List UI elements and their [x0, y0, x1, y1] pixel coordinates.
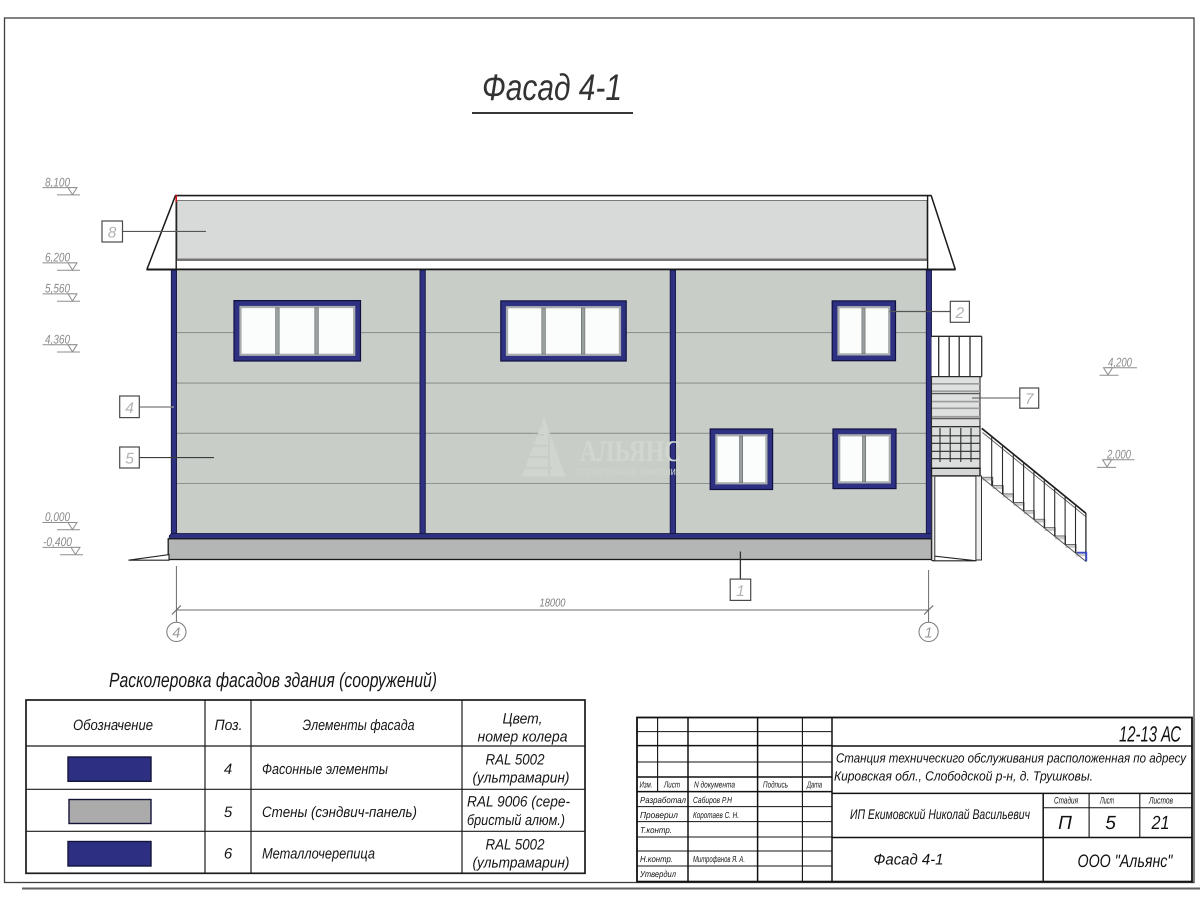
- svg-text:бристый алюм.): бристый алюм.): [467, 812, 565, 829]
- svg-text:8,100: 8,100: [45, 175, 70, 189]
- svg-text:5: 5: [125, 451, 134, 468]
- svg-text:6,200: 6,200: [45, 251, 70, 265]
- svg-text:Т.контр.: Т.контр.: [640, 825, 672, 835]
- svg-text:0,000: 0,000: [45, 510, 70, 524]
- svg-text:Расколеровка фасадов здания (с: Расколеровка фасадов здания (сооружений): [109, 669, 437, 692]
- svg-text:Сабиров Р.Н: Сабиров Р.Н: [693, 795, 732, 805]
- svg-text:N документа: N документа: [694, 780, 735, 790]
- svg-text:Изм.: Изм.: [640, 780, 653, 790]
- svg-text:2: 2: [954, 305, 964, 322]
- svg-text:1: 1: [925, 625, 933, 641]
- svg-text:5: 5: [224, 804, 233, 821]
- svg-text:4: 4: [125, 400, 134, 417]
- svg-text:Листов: Листов: [1148, 796, 1173, 807]
- svg-text:Лист: Лист: [1099, 796, 1114, 807]
- svg-text:Стадия: Стадия: [1054, 796, 1078, 807]
- svg-text:(ультрамарин): (ультрамарин): [473, 855, 570, 872]
- svg-text:Подпись: Подпись: [763, 780, 788, 790]
- svg-text:4,360: 4,360: [45, 332, 70, 346]
- svg-text:-0,400: -0,400: [43, 535, 72, 549]
- svg-text:Цвет,: Цвет,: [503, 711, 543, 728]
- svg-text:Н.контр.: Н.контр.: [640, 854, 673, 864]
- svg-text:Металлочерепица: Металлочерепица: [262, 846, 375, 863]
- svg-text:Кировская обл., Слободской р-н: Кировская обл., Слободской р-н, д. Трушк…: [834, 769, 1093, 784]
- svg-text:Утвердил: Утвердил: [639, 869, 676, 879]
- svg-text:Стены (сэндвич-панель): Стены (сэндвич-панель): [262, 804, 417, 821]
- svg-text:номер колера: номер колера: [478, 729, 568, 746]
- svg-text:Коротаев С. Н.: Коротаев С. Н.: [693, 810, 739, 820]
- svg-text:2,000: 2,000: [1106, 448, 1131, 462]
- svg-text:Митрофанов Я. А.: Митрофанов Я. А.: [693, 854, 745, 864]
- svg-text:ООО "Альянс": ООО "Альянс": [1078, 851, 1174, 871]
- svg-text:18000: 18000: [540, 598, 566, 610]
- svg-text:Поз.: Поз.: [215, 717, 243, 734]
- svg-text:21: 21: [1151, 813, 1170, 834]
- svg-text:Элементы фасада: Элементы фасада: [303, 717, 415, 734]
- svg-text:RAL 5002: RAL 5002: [486, 752, 546, 769]
- svg-text:4,200: 4,200: [1108, 355, 1132, 369]
- svg-text:4: 4: [172, 625, 180, 641]
- svg-text:7: 7: [1025, 391, 1035, 408]
- svg-text:Дата: Дата: [806, 780, 822, 790]
- svg-text:8: 8: [108, 225, 117, 242]
- svg-text:RAL 5002: RAL 5002: [486, 837, 546, 854]
- svg-text:RAL 9006 (сере-: RAL 9006 (сере-: [467, 794, 570, 811]
- svg-text:АЛЬЯНС: АЛЬЯНС: [580, 435, 681, 468]
- svg-text:4: 4: [224, 761, 232, 778]
- svg-text:Разработал: Разработал: [640, 795, 686, 805]
- svg-text:(ультрамарин): (ультрамарин): [473, 770, 570, 787]
- svg-text:Фасад 4-1: Фасад 4-1: [482, 67, 622, 108]
- svg-text:5,560: 5,560: [45, 282, 70, 296]
- svg-text:Фасонные элементы: Фасонные элементы: [262, 761, 388, 778]
- svg-text:6: 6: [224, 846, 233, 863]
- svg-text:12-13 АС: 12-13 АС: [1119, 722, 1181, 747]
- svg-text:строительная компания: строительная компания: [577, 466, 681, 478]
- svg-text:Обозначение: Обозначение: [73, 717, 153, 734]
- svg-text:Лист: Лист: [663, 780, 680, 790]
- svg-text:П: П: [1058, 813, 1072, 834]
- svg-text:1: 1: [736, 583, 745, 600]
- svg-text:Проверил: Проверил: [640, 810, 678, 820]
- svg-text:Фасад 4-1: Фасад 4-1: [874, 852, 944, 869]
- svg-text:5: 5: [1105, 813, 1116, 834]
- svg-text:ИП Екимовский Николай Васильев: ИП Екимовский Николай Васильевич: [850, 806, 1030, 822]
- svg-text:Станция техническиго обслужива: Станция техническиго обслуживания распол…: [836, 751, 1187, 766]
